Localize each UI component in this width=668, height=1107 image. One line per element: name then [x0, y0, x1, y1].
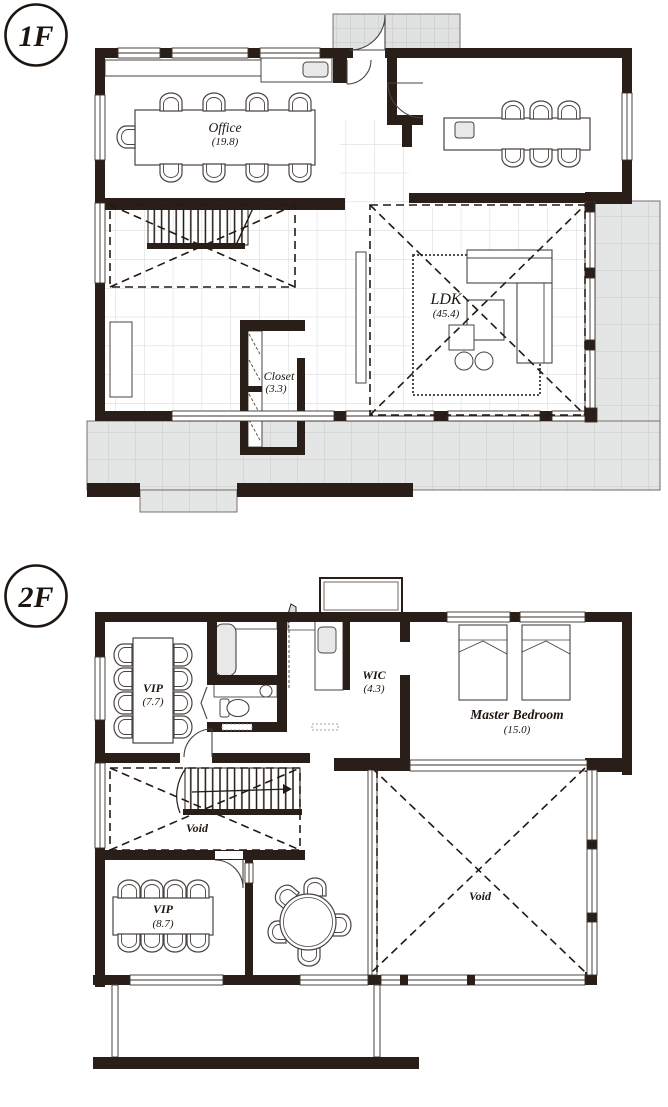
room-label-wic: WIC (4.3) [362, 668, 386, 695]
void-right-window-wall [587, 770, 597, 975]
floor-plan-drawing: 1F Office (19.8) LDK (45.4) Closet (3.3) [0, 0, 668, 1107]
floor-1f-plan: 1F Office (19.8) LDK (45.4) Closet (3.3) [6, 5, 661, 513]
svg-text:WIC: WIC [362, 668, 386, 682]
svg-text:Void: Void [186, 821, 209, 835]
round-table [268, 878, 351, 966]
washroom-door [201, 687, 207, 719]
bathtub [215, 624, 236, 676]
floor-2f-plan: 2F VIP (7.7) WIC (4.3) Master Bedroom (1… [6, 566, 633, 1070]
svg-text:(4.3): (4.3) [363, 683, 384, 695]
floor-1f-badge: 1F [6, 5, 67, 66]
room-label-vip-north: VIP (7.7) [142, 681, 163, 708]
hall-cabinet [288, 619, 343, 690]
svg-text:(19.8): (19.8) [212, 136, 239, 148]
void-left-railing [368, 770, 377, 975]
office-door-swing [347, 60, 371, 84]
toilet [227, 700, 249, 717]
kitchen-island [444, 101, 590, 167]
washroom [201, 684, 277, 719]
room-label-void-main: Void [469, 889, 492, 903]
bedroom-void-railing [410, 760, 587, 771]
svg-text:VIP: VIP [143, 681, 164, 695]
floor-2f-badge: 2F [6, 566, 67, 627]
room-label-ldk: LDK (45.4) [429, 291, 462, 320]
balcony-rail [93, 1057, 419, 1069]
vip-south-door-swing [215, 860, 243, 888]
svg-text:LDK: LDK [429, 291, 462, 308]
svg-text:(15.0): (15.0) [504, 724, 531, 736]
kitchen-counter-pillar [356, 252, 366, 383]
room-label-office: Office (19.8) [209, 120, 242, 148]
svg-text:Void: Void [469, 889, 492, 903]
ldk-right-window-wall [585, 202, 597, 422]
staircase-1f [147, 205, 254, 249]
wash-basin [260, 685, 272, 697]
svg-text:(7.7): (7.7) [142, 696, 163, 708]
floor-plan-canvas: 1F Office (19.8) LDK (45.4) Closet (3.3) [0, 0, 668, 1107]
svg-text:Office: Office [209, 120, 242, 135]
room-label-master-bedroom: Master Bedroom (15.0) [469, 707, 563, 736]
svg-text:Master Bedroom: Master Bedroom [469, 707, 563, 722]
top-bay [288, 578, 402, 614]
balcony [93, 985, 419, 1069]
entry-porch [333, 14, 460, 50]
svg-text:VIP: VIP [153, 902, 174, 916]
svg-text:(8.7): (8.7) [152, 918, 173, 930]
twin-beds [459, 625, 570, 700]
office-counter [105, 58, 332, 82]
svg-text:(45.4): (45.4) [433, 308, 460, 320]
tv-board [110, 322, 132, 397]
svg-text:Closet: Closet [264, 369, 295, 383]
room-label-void-stair: Void [186, 821, 209, 835]
bathroom [214, 621, 277, 676]
svg-text:(3.3): (3.3) [265, 383, 286, 395]
floor-1f-label: 1F [18, 20, 53, 53]
vip-south-table [113, 880, 213, 952]
floor-2f-label: 2F [17, 581, 53, 614]
